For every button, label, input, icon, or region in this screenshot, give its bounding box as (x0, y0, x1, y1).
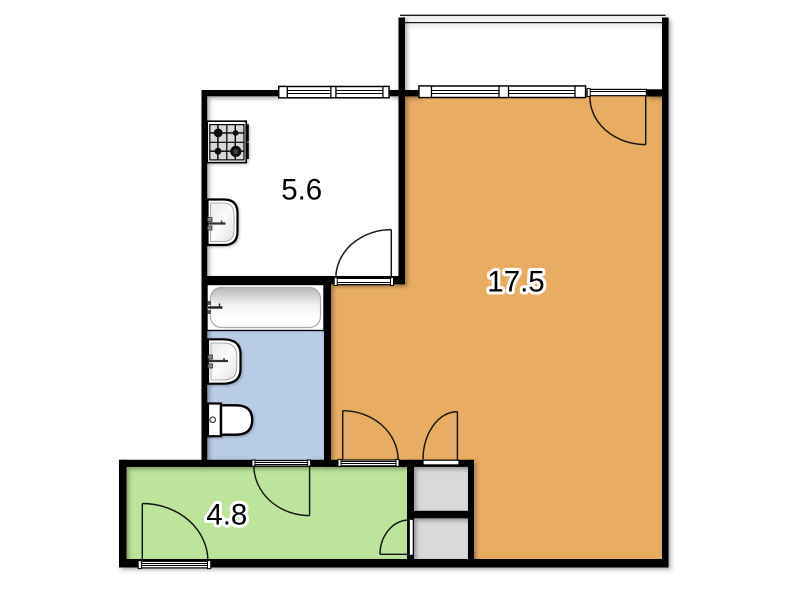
svg-text:5.6: 5.6 (281, 173, 322, 206)
svg-text:4.8: 4.8 (206, 499, 247, 532)
svg-text:17.5: 17.5 (487, 265, 544, 298)
